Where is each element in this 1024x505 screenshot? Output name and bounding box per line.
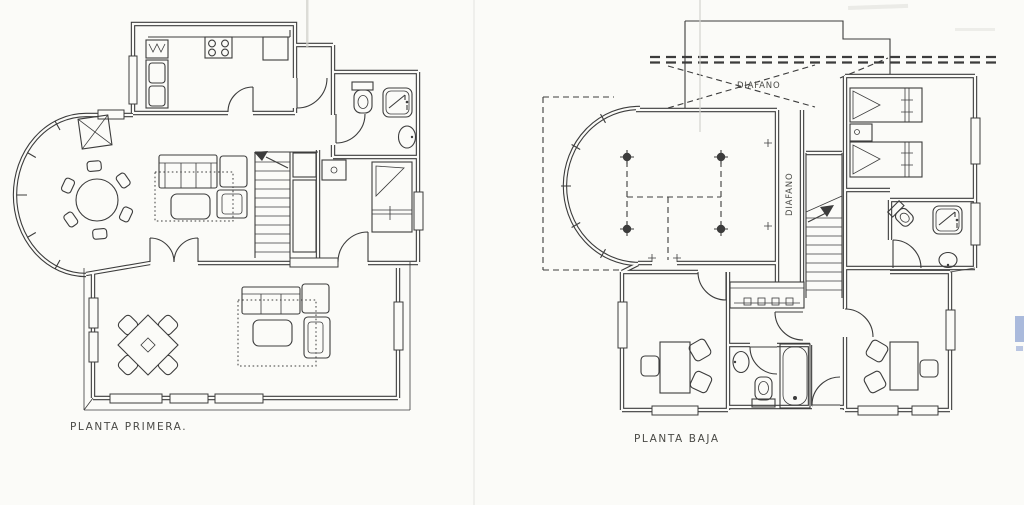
kitchen <box>146 30 290 112</box>
bay-window-mullions <box>17 121 60 269</box>
lower-room <box>117 284 330 376</box>
bedroom-baja <box>850 88 922 177</box>
hall-door <box>297 78 327 108</box>
round-table-icon <box>61 161 134 240</box>
desk-icon <box>890 342 918 390</box>
closet-lower <box>293 180 316 252</box>
stairs-baja <box>806 153 842 298</box>
washbasin-icon <box>399 126 416 148</box>
diafano-dashed-line <box>650 57 1002 63</box>
stairs-arrow-icon <box>254 151 268 161</box>
diafano-upper-label: DIAFANO <box>737 81 780 91</box>
bathroom-upper <box>352 82 416 148</box>
washbasin-icon <box>939 253 957 268</box>
armchair-icon <box>217 190 247 218</box>
stairs-arrow-tail <box>266 157 288 168</box>
bedroom-primera <box>322 160 412 262</box>
bathroom-door <box>893 240 921 268</box>
chair-icon <box>865 339 890 364</box>
bathroom-door <box>750 347 777 374</box>
shower-icon <box>933 206 962 234</box>
rug <box>155 172 233 221</box>
washbasin-icon <box>733 352 749 373</box>
toilet-icon <box>752 377 775 407</box>
kitchen-sink-icon <box>146 40 168 108</box>
shower-icon <box>383 88 412 117</box>
planta-primera-plan: PLANTA PRIMERA. <box>15 24 423 433</box>
bathroom-baja-upper <box>888 201 962 268</box>
chair-icon <box>920 360 938 377</box>
diafano-corridor: DIAFANO <box>785 173 795 216</box>
chair-icon <box>863 370 887 394</box>
kitchen-counter <box>148 30 290 37</box>
coffee-table-icon <box>171 194 210 219</box>
room-door <box>845 309 873 337</box>
kitchen-door <box>228 87 253 112</box>
bed-icon <box>372 162 412 232</box>
living-sofa-group <box>155 155 247 221</box>
pouf-icon <box>302 284 329 313</box>
closet-upper <box>293 153 316 177</box>
square-table-icon <box>117 314 180 377</box>
bathtub-icon <box>780 344 810 408</box>
nightstand-icon <box>850 124 872 141</box>
upper-floor-outline: DIAFANO <box>650 21 1002 108</box>
bathroom-baja-lower <box>733 344 840 408</box>
nightstand-icon <box>322 160 346 180</box>
bed-icon <box>850 142 922 177</box>
blue-ink-mark <box>1015 316 1024 342</box>
floor-plan-sheet: PLANTA PRIMERA. DIAFANO <box>0 0 1024 505</box>
hall-door <box>812 377 840 405</box>
dining-bay <box>61 115 134 239</box>
chair-icon <box>641 356 659 376</box>
fireplace-icon <box>78 115 112 149</box>
fridge-icon <box>263 37 288 60</box>
closet-door <box>775 312 803 340</box>
primera-label: PLANTA PRIMERA. <box>70 421 187 433</box>
chair-icon <box>689 370 713 394</box>
column-markers <box>620 150 728 260</box>
study-right <box>845 309 938 394</box>
planta-baja-plan: DIAFANO <box>543 21 1002 445</box>
wall-section-marks <box>648 139 772 262</box>
room-door <box>698 272 726 300</box>
projection-dashed <box>543 97 622 270</box>
stove-icon <box>205 37 232 58</box>
toilet-icon <box>352 82 373 113</box>
diafano-corridor-label: DIAFANO <box>785 173 795 216</box>
chair-icon <box>688 338 713 363</box>
closet-baja <box>730 282 804 340</box>
baja-label: PLANTA BAJA <box>634 433 720 445</box>
study-left <box>641 272 726 394</box>
blue-ink-mark <box>1016 346 1023 351</box>
armchair-icon <box>304 317 330 358</box>
bathroom-door <box>336 114 365 143</box>
desk-icon <box>660 342 690 393</box>
french-doors <box>150 238 198 262</box>
floor-plan-drawing: PLANTA PRIMERA. DIAFANO <box>0 0 1024 505</box>
coffee-table-icon <box>253 320 292 346</box>
bedroom-door <box>338 232 368 262</box>
lower-sofa-group <box>238 284 330 366</box>
baja-walls <box>561 76 975 410</box>
bed-icon <box>850 88 922 122</box>
stairs-primera <box>254 151 318 258</box>
